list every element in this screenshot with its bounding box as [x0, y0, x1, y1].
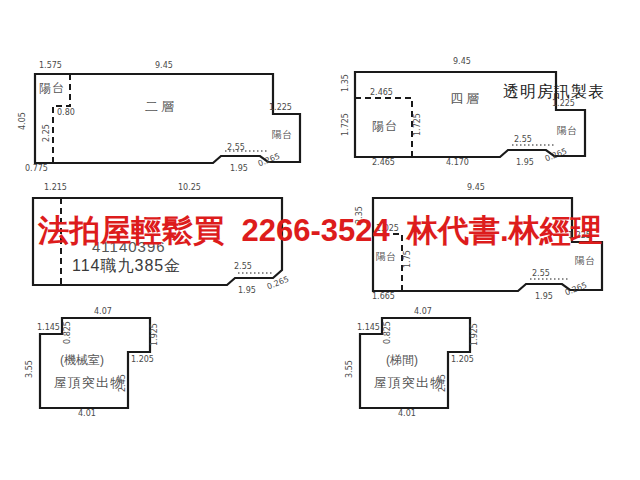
balcony-label: 陽台 [272, 130, 292, 140]
dim-label: 1.925 [151, 323, 159, 346]
balcony-label: 陽台 [39, 82, 65, 94]
dim-label: 0.775 [25, 165, 48, 173]
dim-label: 1.35 [342, 74, 350, 92]
floorplan-sheet: 1.575 9.45 陽台 4.05 0.80 2.25 二層 1.225 陽台… [0, 0, 640, 480]
dim-label: 1.95 [516, 159, 534, 167]
dim-label: 2.55 [514, 136, 532, 144]
structure-label: 屋頂突出物 [54, 376, 124, 389]
dim-label: 1.95 [238, 287, 256, 295]
dim-label: 9.45 [155, 62, 173, 70]
dim-label: 1.95 [535, 293, 553, 301]
balcony-label: 陽台 [376, 252, 396, 262]
dim-label: 4.07 [414, 308, 432, 316]
dim-label: 2.55 [532, 270, 550, 278]
plan-roof-left: 4.07 1.145 0.825 1.925 1.205 2.45 3.55 (… [32, 312, 164, 414]
balcony-label: 陽台 [575, 256, 595, 266]
dim-label: 1.575 [39, 62, 62, 70]
maker-credit: 透明房訊製表 [503, 82, 605, 103]
dim-label: 1.145 [357, 324, 380, 332]
floor-name-label: 四層 [450, 92, 482, 105]
dim-label: 1.225 [269, 104, 292, 112]
ad-watermark-text: 法拍屋輕鬆買 2266-3524 林代書.林經理 [0, 212, 640, 249]
dim-label: 4.01 [398, 410, 416, 418]
room-label: (梯間) [386, 354, 418, 366]
dim-label: 1.145 [37, 324, 60, 332]
dim-label: 1.75 [404, 250, 412, 268]
dim-label: 1.95 [230, 165, 248, 173]
plan-floor2: 1.575 9.45 陽台 4.05 0.80 2.25 二層 1.225 陽台… [25, 58, 315, 172]
room-label: (機械室) [60, 354, 104, 366]
dim-label: 3.55 [346, 360, 354, 378]
case-number: 114職九385金 [72, 256, 181, 277]
balcony-label: 陽台 [372, 120, 398, 132]
dim-label: 2.465 [370, 89, 393, 97]
dim-label: 0.825 [64, 321, 72, 344]
dim-label: 4.07 [94, 308, 112, 316]
dim-label: 4.01 [78, 410, 96, 418]
dim-label: 9.45 [453, 58, 471, 66]
dim-label: 2.465 [372, 159, 395, 167]
dim-label: 1.925 [471, 323, 479, 346]
dim-label: 10.25 [178, 184, 201, 192]
dim-label: 0.80 [57, 109, 75, 117]
dim-label: 1.725 [414, 113, 422, 136]
dim-label: 4.05 [19, 112, 27, 130]
dim-label: 4.170 [446, 159, 469, 167]
dim-label: 1.665 [372, 293, 395, 301]
dim-label: 2.25 [43, 124, 51, 142]
balcony-label: 陽台 [557, 126, 577, 136]
dim-label: 1.725 [342, 113, 350, 136]
dim-label: 1.215 [44, 184, 67, 192]
plan-floor4: 9.45 1.35 2.465 陽台 1.725 1.725 四層 1.225 … [348, 58, 593, 170]
plan-roof-right: 4.07 1.145 0.825 1.925 1.205 2.45 3.55 (… [352, 312, 484, 414]
dim-label: 0.825 [384, 321, 392, 344]
dim-label: 2.55 [227, 144, 245, 152]
dim-label: 1.205 [451, 356, 474, 364]
dim-label: 3.55 [26, 360, 34, 378]
dim-label: 1.205 [131, 356, 154, 364]
dim-label: 2.55 [234, 263, 252, 271]
floor-name-label: 二層 [145, 100, 177, 113]
plan-floor2-outline [35, 74, 300, 163]
structure-label: 屋頂突出物 [374, 376, 444, 389]
dim-label: 9.45 [467, 184, 485, 192]
